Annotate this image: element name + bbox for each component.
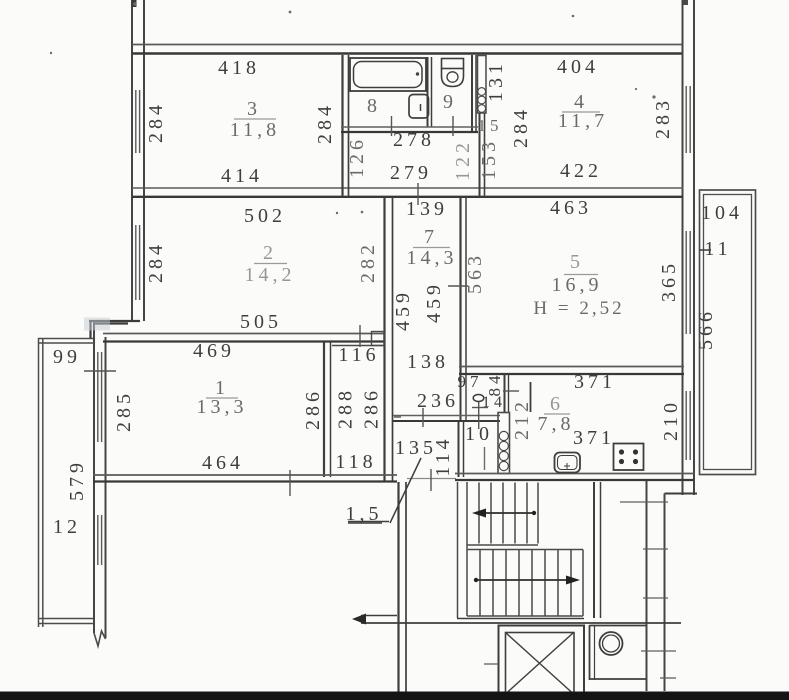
svg-text:9: 9 bbox=[443, 91, 457, 113]
svg-text:279: 279 bbox=[390, 162, 432, 184]
svg-text:6: 6 bbox=[550, 393, 564, 415]
svg-text:12: 12 bbox=[53, 516, 81, 538]
svg-text:7,8: 7,8 bbox=[538, 413, 575, 435]
svg-text:13,3: 13,3 bbox=[197, 396, 248, 418]
svg-text:104: 104 bbox=[701, 202, 743, 224]
svg-text:10: 10 bbox=[465, 423, 493, 445]
svg-text:286: 286 bbox=[302, 388, 324, 430]
svg-text:8: 8 bbox=[367, 95, 381, 117]
svg-text:212: 212 bbox=[511, 398, 533, 440]
svg-text:97: 97 bbox=[458, 372, 483, 391]
svg-text:414: 414 bbox=[221, 165, 263, 187]
svg-text:153: 153 bbox=[478, 138, 500, 180]
svg-text:505: 505 bbox=[240, 311, 282, 333]
svg-text:283: 283 bbox=[652, 97, 674, 139]
svg-text:99: 99 bbox=[53, 346, 81, 368]
svg-text:284: 284 bbox=[145, 241, 167, 283]
svg-text:469: 469 bbox=[193, 340, 235, 362]
svg-text:365: 365 bbox=[658, 260, 680, 302]
svg-text:563: 563 bbox=[464, 252, 486, 294]
svg-text:138: 138 bbox=[407, 351, 449, 373]
svg-text:463: 463 bbox=[550, 197, 592, 219]
svg-text:566: 566 bbox=[695, 308, 717, 350]
svg-text:285: 285 bbox=[113, 390, 135, 432]
svg-text:84: 84 bbox=[485, 372, 504, 397]
svg-text:286: 286 bbox=[361, 387, 383, 429]
svg-text:284: 284 bbox=[314, 102, 336, 144]
svg-text:371: 371 bbox=[574, 371, 616, 393]
svg-text:135: 135 bbox=[395, 437, 437, 459]
svg-text:502: 502 bbox=[244, 205, 286, 227]
svg-text:284: 284 bbox=[510, 106, 532, 148]
svg-text:284: 284 bbox=[145, 101, 167, 143]
svg-text:131: 131 bbox=[485, 60, 507, 102]
svg-text:11: 11 bbox=[704, 238, 731, 260]
svg-text:422: 422 bbox=[560, 160, 602, 182]
svg-text:282: 282 bbox=[357, 241, 379, 283]
svg-text:14,2: 14,2 bbox=[245, 264, 296, 286]
svg-text:122: 122 bbox=[452, 139, 474, 181]
svg-text:1,5: 1,5 bbox=[346, 503, 383, 525]
svg-text:116: 116 bbox=[338, 344, 379, 366]
svg-text:14,3: 14,3 bbox=[407, 247, 458, 269]
svg-text:5: 5 bbox=[570, 251, 584, 273]
svg-text:2: 2 bbox=[263, 242, 277, 264]
svg-text:210: 210 bbox=[660, 399, 682, 441]
svg-text:139: 139 bbox=[406, 198, 448, 220]
svg-text:H = 2,52: H = 2,52 bbox=[533, 298, 624, 319]
svg-text:459: 459 bbox=[392, 289, 414, 331]
svg-text:236: 236 bbox=[417, 390, 459, 412]
svg-text:464: 464 bbox=[202, 452, 244, 474]
svg-text:126: 126 bbox=[346, 136, 368, 178]
svg-text:278: 278 bbox=[393, 129, 435, 151]
svg-text:11,8: 11,8 bbox=[230, 119, 280, 141]
svg-text:114: 114 bbox=[432, 435, 454, 476]
svg-text:16,9: 16,9 bbox=[552, 274, 603, 296]
svg-text:371: 371 bbox=[573, 427, 615, 449]
svg-text:3: 3 bbox=[247, 98, 261, 120]
svg-text:459: 459 bbox=[423, 281, 445, 323]
svg-text:15: 15 bbox=[478, 116, 503, 135]
svg-text:118: 118 bbox=[335, 451, 376, 473]
svg-text:11,7: 11,7 bbox=[558, 110, 608, 132]
svg-text:288: 288 bbox=[335, 387, 357, 429]
svg-text:418: 418 bbox=[218, 57, 260, 79]
svg-text:579: 579 bbox=[66, 459, 88, 501]
svg-text:7: 7 bbox=[424, 226, 438, 248]
svg-text:404: 404 bbox=[557, 56, 599, 78]
